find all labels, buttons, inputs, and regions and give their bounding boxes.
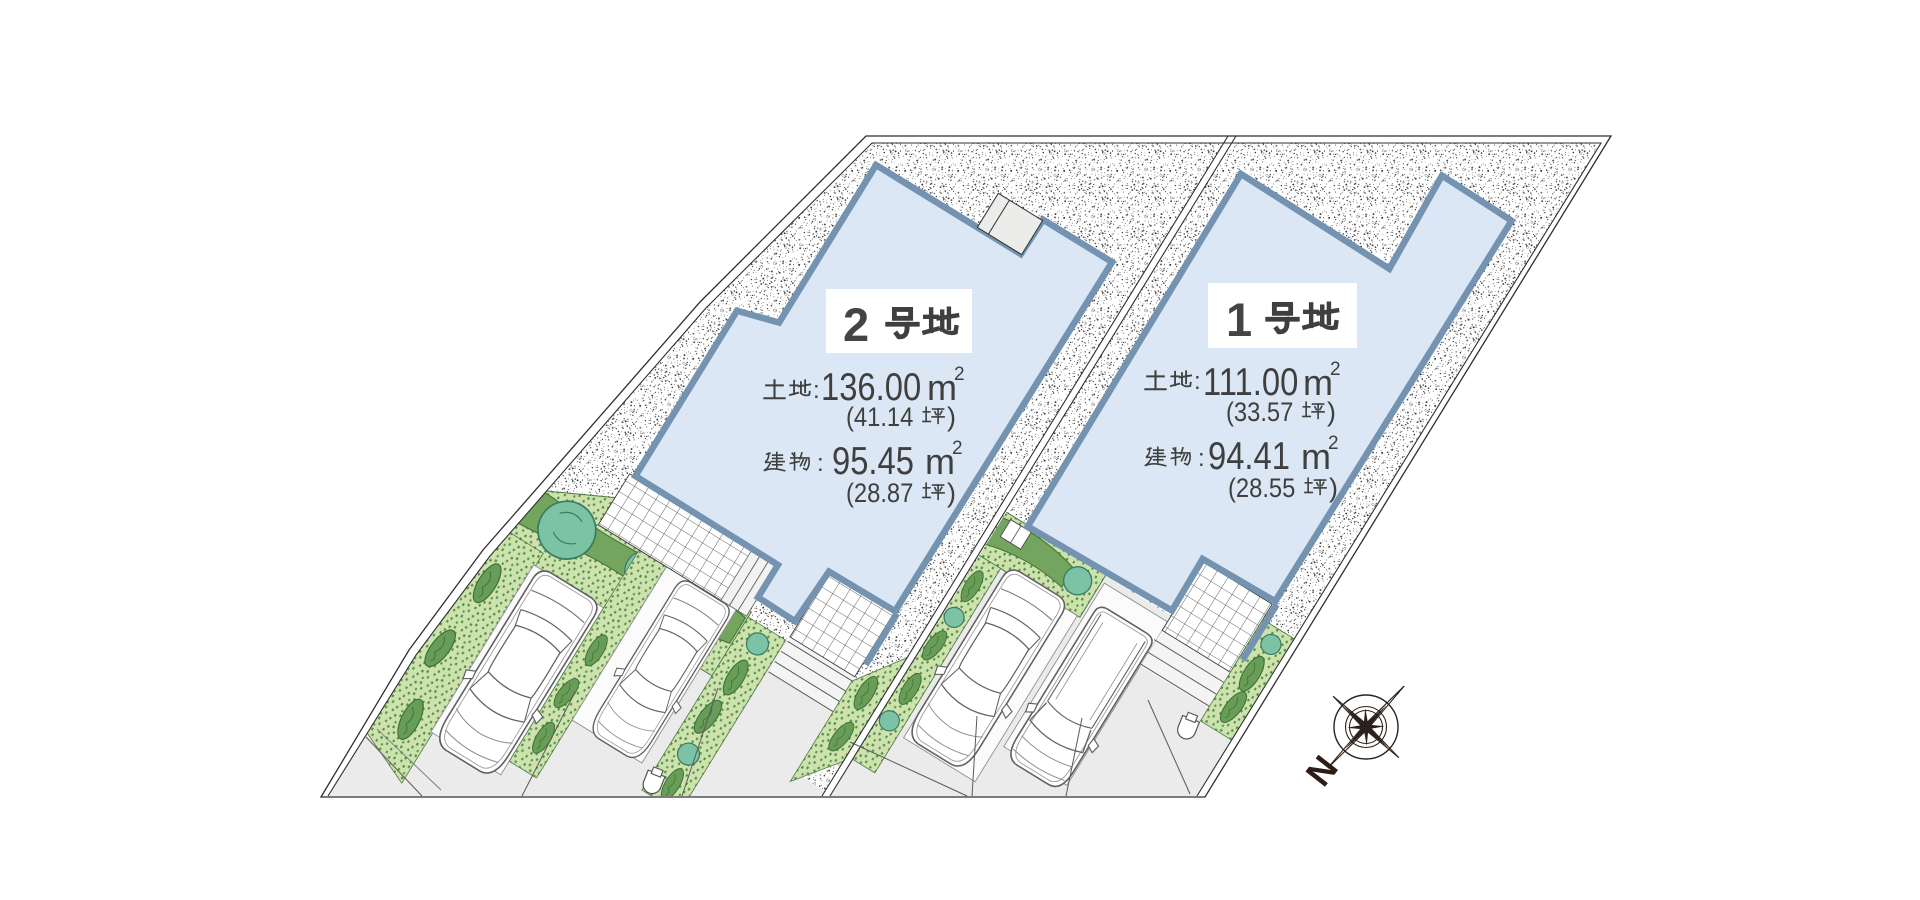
svg-text:m: m [925,441,955,482]
svg-text::: : [1194,368,1201,395]
svg-text:2: 2 [1328,433,1339,454]
svg-text::: : [1198,445,1205,472]
svg-text:(28.55: (28.55 [1228,474,1295,504]
svg-text:): ) [947,402,956,432]
svg-text:95.45: 95.45 [832,438,914,482]
svg-text:94.41: 94.41 [1208,433,1290,477]
svg-text:): ) [1327,397,1336,427]
svg-text:(41.14: (41.14 [846,403,913,433]
svg-text::: : [813,377,820,404]
svg-text:2: 2 [1330,359,1341,380]
svg-text:1: 1 [1226,293,1252,346]
svg-text::: : [817,450,824,477]
svg-text:(33.57: (33.57 [1226,398,1293,428]
svg-text:2: 2 [954,364,965,385]
svg-text:(28.87: (28.87 [846,479,913,509]
svg-text:): ) [947,478,956,508]
svg-text:): ) [1329,473,1338,503]
svg-text:2: 2 [843,298,869,351]
svg-text:2: 2 [952,438,963,459]
svg-text:m: m [1301,436,1331,477]
